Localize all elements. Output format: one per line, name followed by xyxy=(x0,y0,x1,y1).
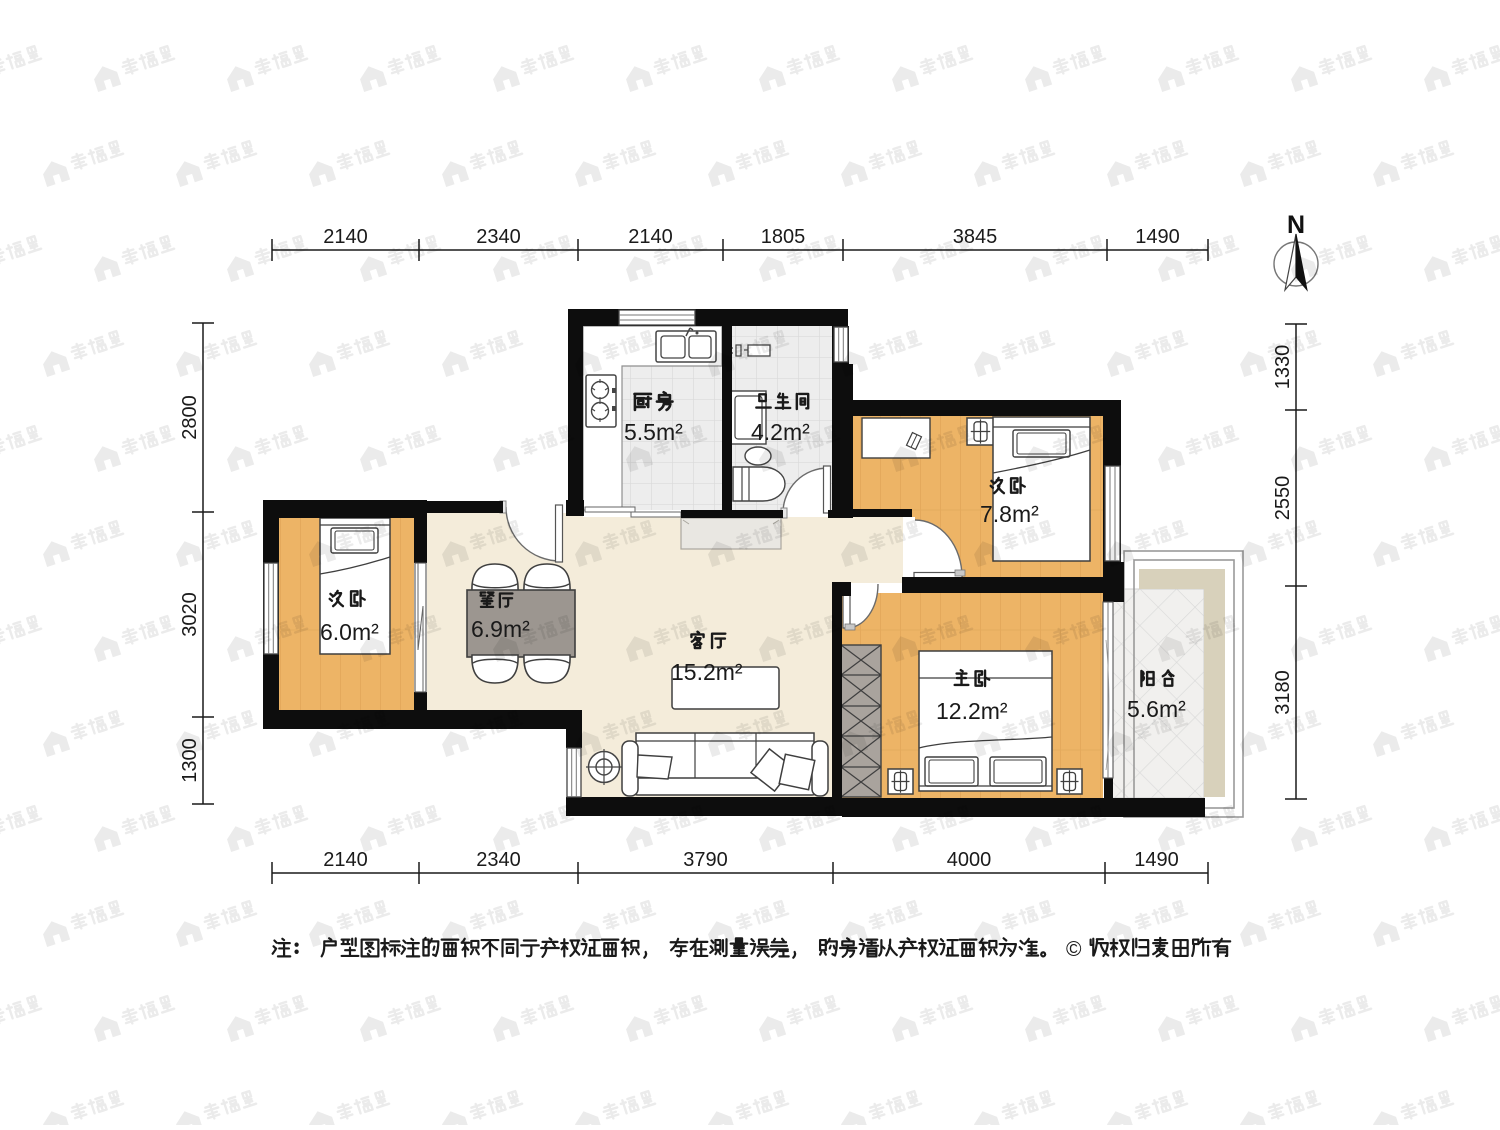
svg-text:4.2m²: 4.2m² xyxy=(751,419,810,445)
svg-text:4000: 4000 xyxy=(947,849,992,871)
svg-text:1490: 1490 xyxy=(1135,226,1180,248)
svg-text:2340: 2340 xyxy=(476,849,521,871)
svg-text:©: © xyxy=(1066,938,1082,961)
svg-text:3180: 3180 xyxy=(1272,670,1294,715)
svg-text:2140: 2140 xyxy=(628,226,673,248)
svg-text:1490: 1490 xyxy=(1134,849,1179,871)
svg-text:2340: 2340 xyxy=(476,226,521,248)
svg-text:2550: 2550 xyxy=(1272,476,1294,521)
svg-text:15.2m²: 15.2m² xyxy=(671,659,743,685)
svg-text:3020: 3020 xyxy=(179,592,201,637)
svg-text:2140: 2140 xyxy=(323,226,368,248)
svg-text:2800: 2800 xyxy=(179,395,201,440)
svg-text:1805: 1805 xyxy=(761,226,806,248)
svg-text:2140: 2140 xyxy=(323,849,368,871)
svg-text:12.2m²: 12.2m² xyxy=(936,698,1008,724)
svg-text:7.8m²: 7.8m² xyxy=(980,501,1039,527)
svg-text:3790: 3790 xyxy=(683,849,728,871)
